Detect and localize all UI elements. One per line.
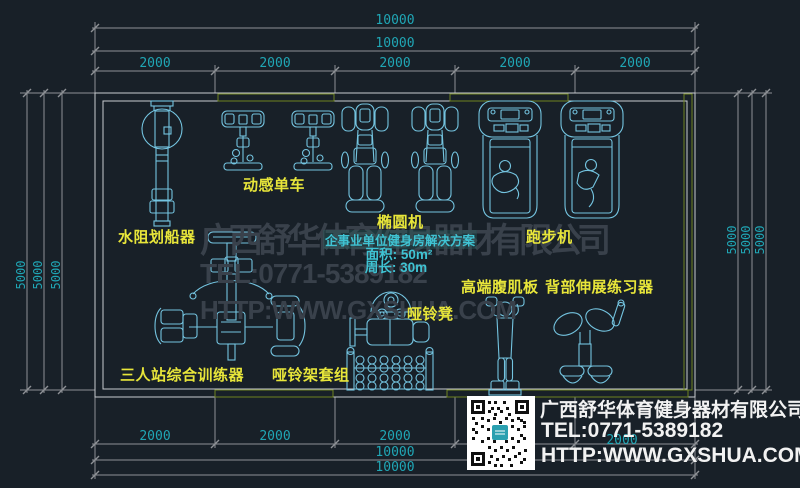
dim-top-seg-3: 2000 [379, 56, 410, 71]
watermark-website: HTTP:WWW.GXSHUA.COM [200, 295, 516, 326]
cad-drawing-canvas: 广西舒华体育健身器材有限公司 TEL:0771-5389182 HTTP:WWW… [0, 0, 800, 488]
spin-bike-drawing [292, 111, 334, 170]
dim-top-seg-1: 2000 [139, 56, 170, 71]
label-ab-board: 高端腹肌板 [461, 276, 539, 297]
treadmill-drawing [561, 101, 623, 218]
dim-bottom-seg-1: 2000 [139, 429, 170, 444]
infobox-company: 广西舒华体育健身器材有限公司 [540, 395, 800, 422]
dim-bottom-overall-1: 10000 [375, 445, 414, 460]
infobox-website: HTTP:WWW.GXSHUA.COM [541, 444, 800, 468]
dim-bottom-overall-2: 10000 [375, 460, 414, 475]
dim-top-seg-5: 2000 [619, 56, 650, 71]
dim-bottom-seg-4: 2000 [499, 429, 530, 444]
back-extension-drawing [550, 300, 625, 383]
dim-left-2: 5000 [31, 261, 45, 290]
dim-right-1: 5000 [725, 226, 739, 255]
dim-top-overall-1: 10000 [375, 13, 414, 28]
wall-highlight-top-right [450, 94, 568, 101]
elliptical-drawing [342, 104, 389, 212]
rower-drawing [142, 101, 182, 226]
treadmill-drawing [479, 101, 541, 218]
wall-highlight-bottom-left [215, 390, 333, 397]
dim-top-overall-2: 10000 [375, 36, 414, 51]
dim-bottom-seg-3: 2000 [379, 429, 410, 444]
label-back-extension: 背部伸展练习器 [545, 276, 654, 297]
elliptical-drawing [412, 104, 459, 212]
dumbbell-rack-drawing [347, 348, 433, 391]
label-dumbbell-rack: 哑铃架套组 [272, 364, 350, 385]
dim-top-seg-4: 2000 [499, 56, 530, 71]
dim-right-2: 5000 [739, 226, 753, 255]
label-multi-station: 三人站综合训练器 [120, 364, 244, 385]
dim-right-3: 5000 [753, 226, 767, 255]
spin-bike-drawing [222, 111, 264, 170]
label-spin-bike: 动感单车 [243, 174, 305, 195]
infobox-tel: TEL:0771-5389182 [541, 419, 723, 443]
dim-left-1: 5000 [14, 261, 28, 290]
label-rower: 水阻划船器 [118, 226, 196, 247]
dim-left-3: 5000 [49, 261, 63, 290]
label-elliptical: 椭圆机 [377, 211, 424, 232]
wall-highlight-top-left [218, 94, 334, 101]
dim-top-seg-2: 2000 [259, 56, 290, 71]
solution-perimeter: 周长: 30m [365, 256, 427, 276]
label-dumbbell-bench: 哑铃凳 [407, 303, 454, 324]
label-treadmill: 跑步机 [526, 226, 573, 247]
left-dimension-lines [20, 89, 95, 394]
wall-highlight-right [684, 94, 692, 390]
red-marker-symbol [703, 236, 724, 250]
dim-bottom-seg-2: 2000 [259, 429, 290, 444]
